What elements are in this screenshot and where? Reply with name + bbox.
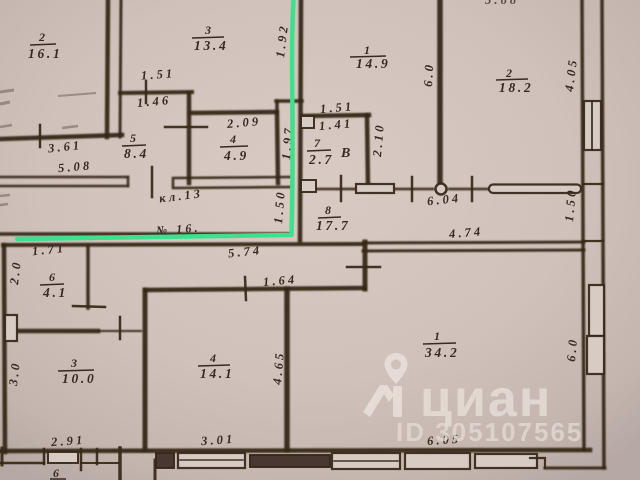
svg-text:14.9: 14.9 bbox=[356, 56, 390, 71]
svg-text:3: 3 bbox=[70, 356, 77, 370]
svg-text:6: 6 bbox=[49, 270, 55, 284]
svg-text:1.64: 1.64 bbox=[262, 272, 297, 289]
svg-text:1: 1 bbox=[434, 329, 440, 343]
svg-text:2: 2 bbox=[38, 30, 45, 44]
svg-text:6.0: 6.0 bbox=[564, 336, 580, 362]
svg-text:6.0: 6.0 bbox=[421, 62, 436, 88]
svg-text:13.4: 13.4 bbox=[194, 38, 228, 53]
svg-text:1.50: 1.50 bbox=[271, 189, 288, 224]
svg-text:18.2: 18.2 bbox=[499, 80, 533, 95]
svg-text:4.1: 4.1 bbox=[42, 285, 68, 300]
svg-text:В: В bbox=[340, 146, 353, 161]
svg-text:1.41: 1.41 bbox=[318, 116, 353, 133]
svg-text:3.01: 3.01 bbox=[200, 432, 236, 448]
svg-text:8.4: 8.4 bbox=[124, 146, 149, 161]
svg-text:1.51: 1.51 bbox=[141, 66, 176, 82]
svg-text:3: 3 bbox=[204, 23, 211, 37]
svg-text:4: 4 bbox=[209, 351, 216, 365]
svg-text:2.7: 2.7 bbox=[308, 152, 334, 167]
svg-text:1.51: 1.51 bbox=[319, 99, 354, 116]
svg-text:14.1: 14.1 bbox=[200, 366, 234, 381]
svg-text:2: 2 bbox=[505, 66, 512, 80]
svg-text:5.88: 5.88 bbox=[485, 0, 519, 7]
svg-text:1: 1 bbox=[364, 43, 370, 57]
svg-text:4: 4 bbox=[229, 132, 236, 146]
svg-text:1.46: 1.46 bbox=[136, 93, 171, 110]
svg-text:1.50: 1.50 bbox=[562, 187, 579, 222]
svg-text:16.1: 16.1 bbox=[28, 46, 62, 61]
svg-text:17.7: 17.7 bbox=[316, 218, 350, 233]
svg-text:2.91: 2.91 bbox=[50, 433, 86, 449]
svg-text:5.08: 5.08 bbox=[57, 158, 92, 175]
svg-text:34.2: 34.2 bbox=[424, 345, 459, 360]
svg-text:10.0: 10.0 bbox=[62, 371, 96, 386]
svg-text:6: 6 bbox=[53, 466, 59, 480]
svg-text:4.9: 4.9 bbox=[223, 148, 249, 163]
svg-text:5: 5 bbox=[130, 131, 136, 145]
svg-text:7: 7 bbox=[314, 136, 321, 150]
svg-text:8: 8 bbox=[325, 203, 331, 217]
svg-text:ID 305107565: ID 305107565 bbox=[396, 417, 583, 447]
